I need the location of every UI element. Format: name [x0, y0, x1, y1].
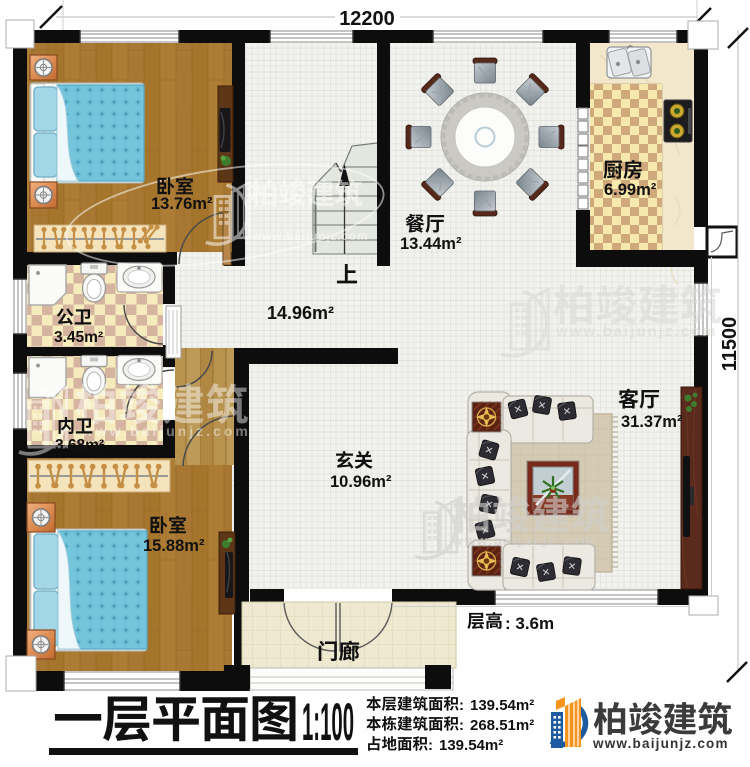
svg-text:www.baijunjz.com: www.baijunjz.com — [251, 229, 368, 243]
svg-text:: 3.6m: : 3.6m — [505, 614, 554, 633]
svg-text:www.baijunjz.com: www.baijunjz.com — [592, 736, 729, 751]
svg-text:www.baijunjz.com: www.baijunjz.com — [555, 323, 717, 340]
svg-text:10.96m²: 10.96m² — [330, 473, 392, 491]
svg-text::: : — [459, 717, 464, 734]
svg-text::: : — [428, 737, 433, 754]
svg-text:31.37m²: 31.37m² — [621, 413, 683, 431]
svg-text:15.88m²: 15.88m² — [143, 537, 205, 555]
svg-text:1:100: 1:100 — [302, 693, 354, 752]
svg-text:139.54m²: 139.54m² — [439, 737, 503, 754]
svg-text:www.baijunjz.com: www.baijunjz.com — [452, 533, 594, 548]
svg-text:13.76m²: 13.76m² — [151, 195, 213, 213]
svg-text:3.68m²: 3.68m² — [55, 437, 104, 454]
svg-text:12200: 12200 — [339, 8, 395, 30]
svg-text:11500: 11500 — [719, 317, 741, 372]
svg-text:268.51m²: 268.51m² — [470, 717, 534, 734]
svg-text::: : — [459, 697, 464, 714]
svg-text:6.99m²: 6.99m² — [604, 181, 657, 199]
svg-text:3.45m²: 3.45m² — [54, 329, 103, 346]
svg-text:www.baijunjz.com: www.baijunjz.com — [81, 423, 251, 439]
svg-text:139.54m²: 139.54m² — [470, 697, 534, 714]
svg-text:13.44m²: 13.44m² — [400, 235, 462, 253]
svg-text:14.96m²: 14.96m² — [267, 303, 334, 323]
